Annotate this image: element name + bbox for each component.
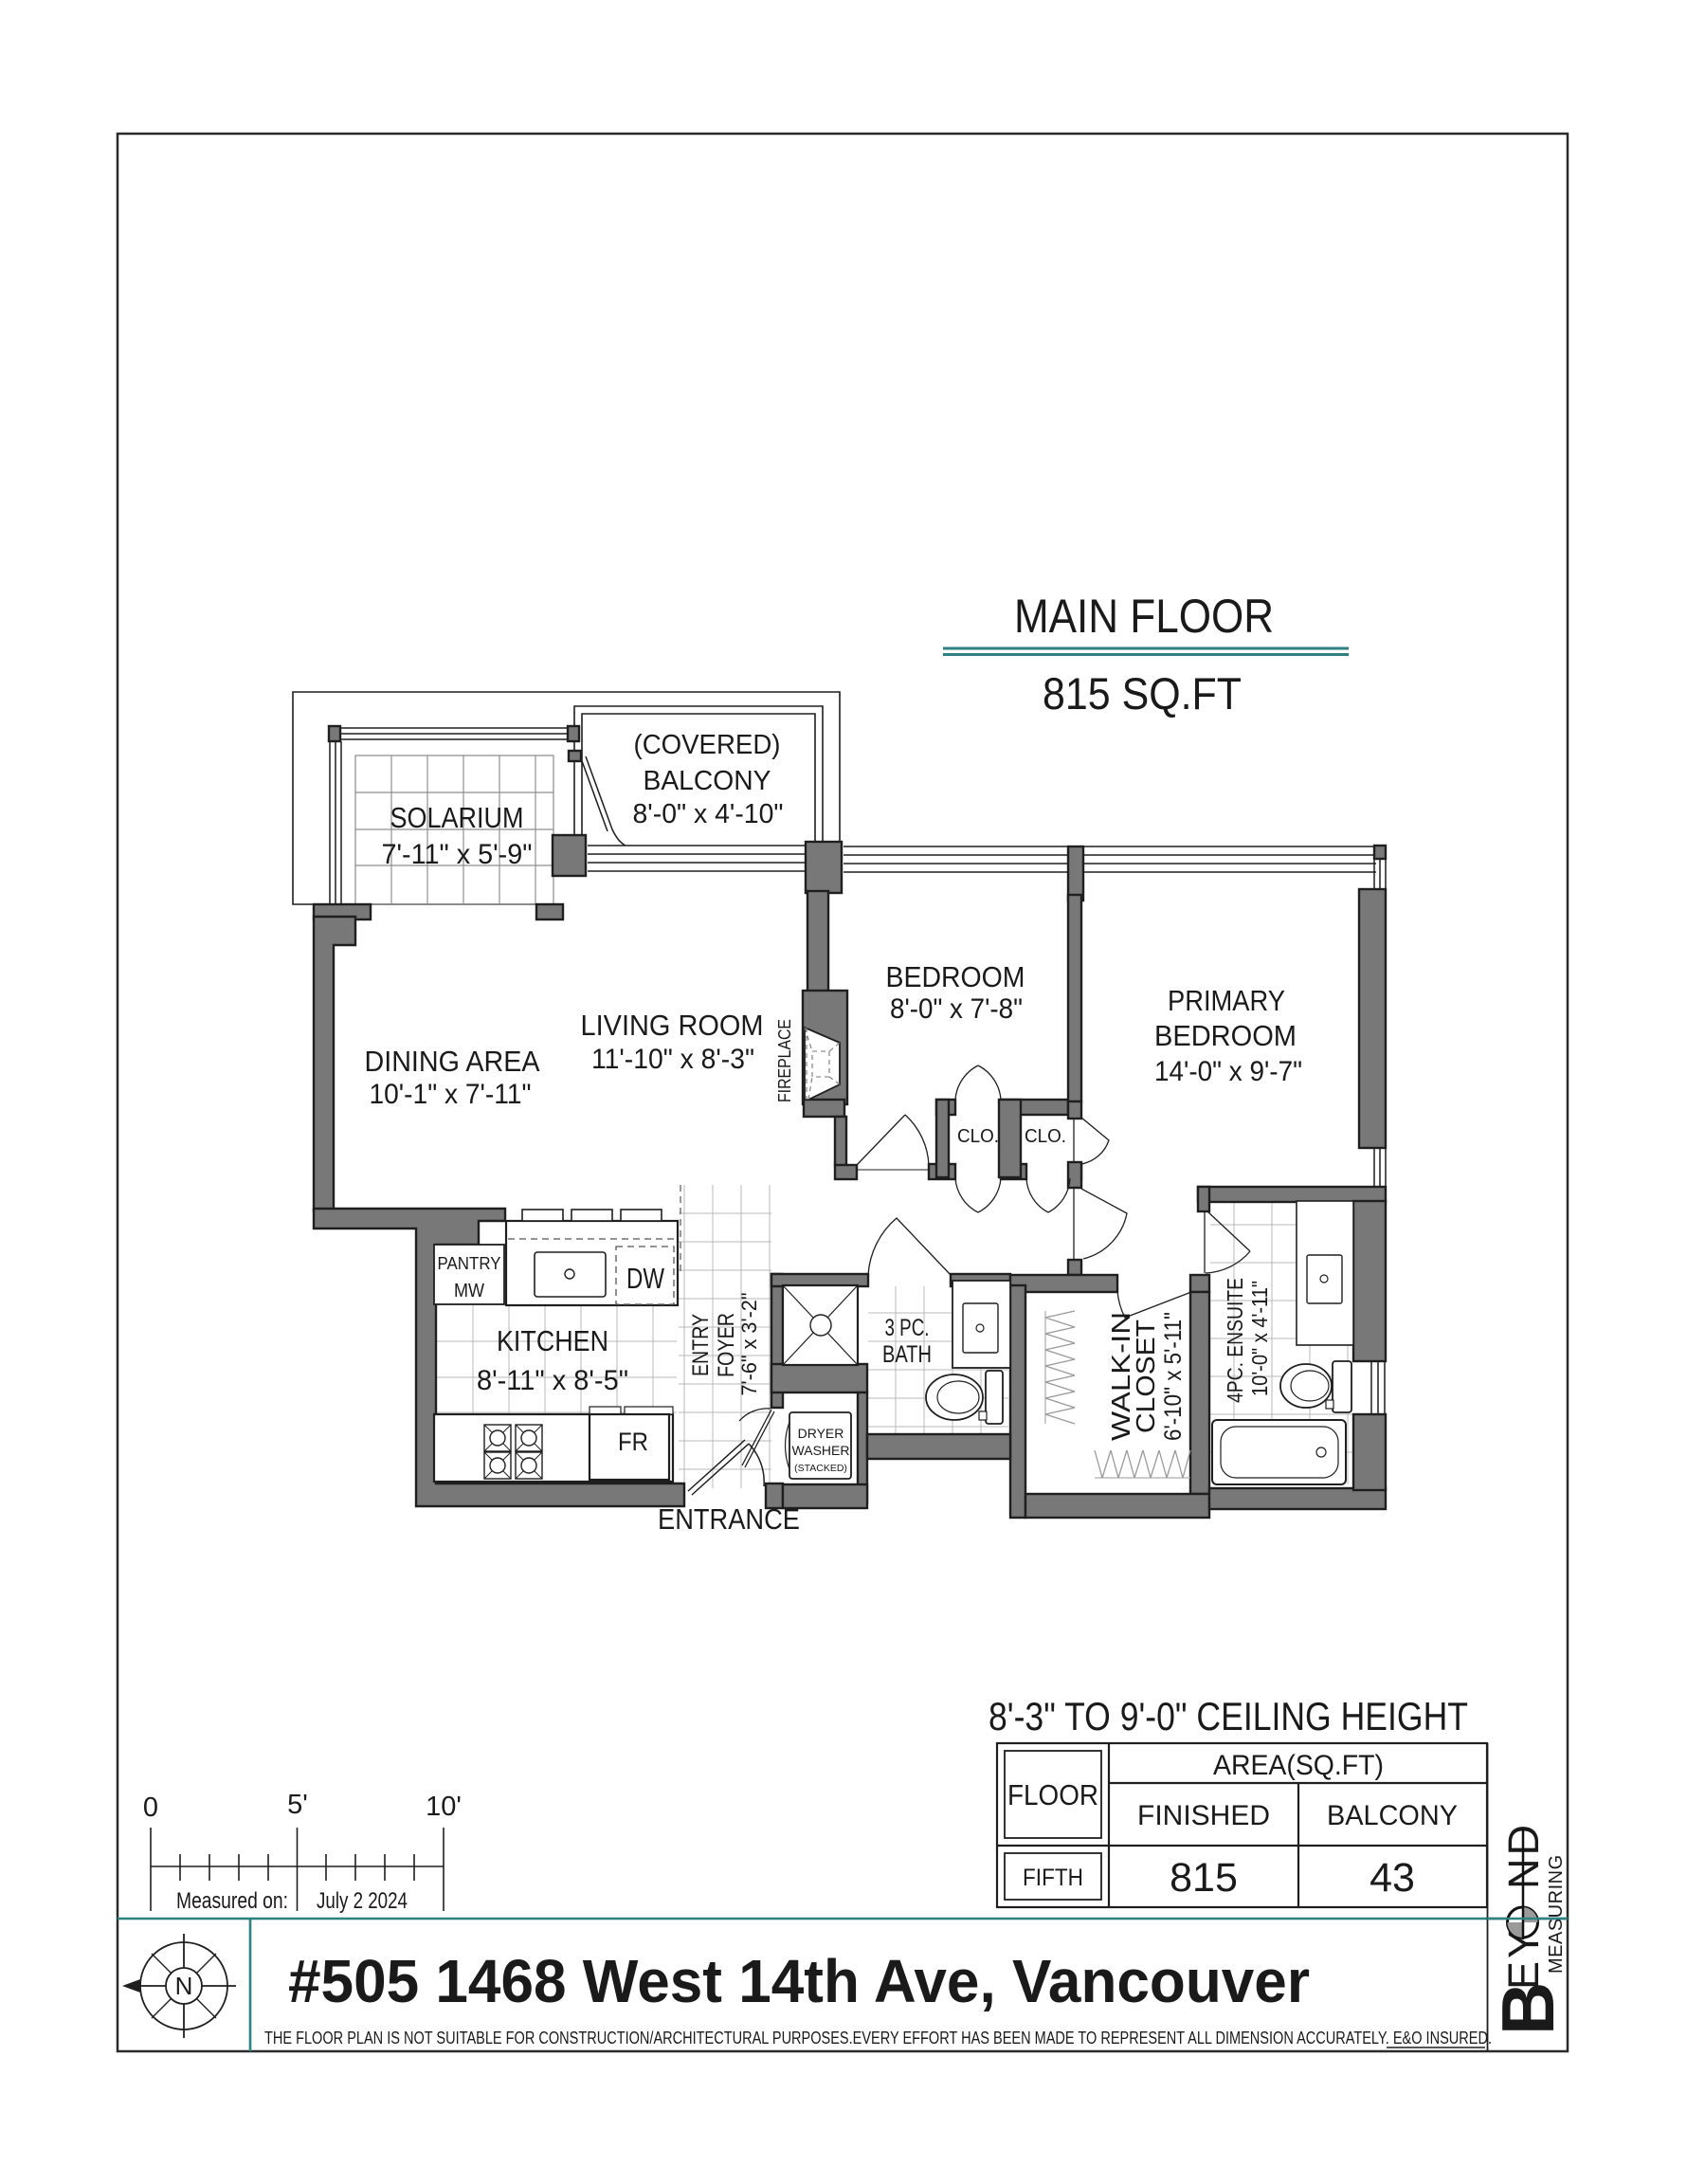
svg-text:(COVERED): (COVERED) (634, 730, 781, 760)
svg-text:WASHER: WASHER (792, 1443, 850, 1458)
svg-text:10'-1" x 7'-11": 10'-1" x 7'-11" (370, 1079, 532, 1110)
svg-text:FIFTH: FIFTH (1023, 1865, 1083, 1891)
svg-text:FR: FR (618, 1428, 648, 1456)
svg-text:ENTRANCE: ENTRANCE (658, 1502, 800, 1536)
svg-text:BALCONY: BALCONY (1327, 1800, 1458, 1831)
svg-text:N: N (175, 1972, 193, 2000)
svg-text:BEDROOM: BEDROOM (1154, 1019, 1297, 1052)
svg-text:43: 43 (1370, 1855, 1415, 1901)
svg-text:6'-10" x 5'-11": 6'-10" x 5'-11" (1160, 1312, 1187, 1441)
svg-text:0: 0 (143, 1793, 158, 1823)
svg-text:815: 815 (1170, 1855, 1238, 1901)
svg-text:KITCHEN: KITCHEN (497, 1324, 608, 1357)
svg-text:14'-0" x 9'-7": 14'-0" x 9'-7" (1154, 1056, 1302, 1087)
svg-text:DRYER: DRYER (798, 1426, 844, 1441)
svg-text:3 PC.: 3 PC. (885, 1315, 930, 1341)
svg-text:MEASURING: MEASURING (1546, 1854, 1567, 1974)
svg-text:THE FLOOR PLAN IS NOT SUITAB: THE FLOOR PLAN IS NOT SUITABLE FOR CONST… (264, 2029, 1492, 2047)
svg-text:DINING AREA: DINING AREA (365, 1045, 540, 1078)
svg-text:PRIMARY: PRIMARY (1168, 984, 1285, 1017)
svg-text:BALCONY: BALCONY (644, 766, 771, 796)
svg-text:MW: MW (454, 1281, 484, 1301)
svg-text:4PC. ENSUITE: 4PC. ENSUITE (1223, 1278, 1247, 1403)
svg-text:AREA(SQ.FT): AREA(SQ.FT) (1213, 1750, 1384, 1781)
svg-text:SOLARIUM: SOLARIUM (390, 801, 524, 834)
svg-text:8'-0" x 7'-8": 8'-0" x 7'-8" (890, 993, 1023, 1025)
svg-text:FOYER: FOYER (714, 1313, 739, 1377)
svg-text:Measured on:: Measured on: (176, 1888, 288, 1914)
svg-text:#505 1468 West 14th Ave, Vanco: #505 1468 West 14th Ave, Vancouver (288, 1947, 1310, 2015)
svg-text:BATH: BATH (882, 1341, 932, 1368)
svg-text:ENTRY: ENTRY (688, 1314, 714, 1376)
svg-text:BEDROOM: BEDROOM (886, 960, 1025, 993)
svg-text:FIREPLACE: FIREPLACE (775, 1019, 794, 1102)
svg-text:CLOSET: CLOSET (1131, 1319, 1160, 1433)
svg-text:FLOOR: FLOOR (1007, 1778, 1098, 1811)
svg-text:11'-10" x 8'-3": 11'-10" x 8'-3" (591, 1044, 754, 1075)
svg-text:MAIN FLOOR: MAIN FLOOR (1014, 590, 1274, 643)
svg-text:DW: DW (626, 1262, 665, 1295)
svg-text:10': 10' (426, 1792, 462, 1822)
svg-text:7'-11" x 5'-9": 7'-11" x 5'-9" (382, 839, 533, 870)
svg-text:8'-11" x 8'-5": 8'-11" x 8'-5" (477, 1365, 628, 1396)
svg-text:8'-0" x 4'-10": 8'-0" x 4'-10" (633, 799, 784, 829)
svg-text:CLO.: CLO. (957, 1126, 999, 1147)
svg-text:LIVING ROOM: LIVING ROOM (581, 1009, 764, 1042)
svg-text:815 SQ.FT: 815 SQ.FT (1043, 668, 1242, 719)
svg-text:(STACKED): (STACKED) (794, 1463, 847, 1474)
svg-text:5': 5' (287, 1790, 308, 1820)
svg-text:CLO.: CLO. (1025, 1126, 1066, 1147)
svg-text:PANTRY: PANTRY (438, 1254, 501, 1273)
svg-text:10'-0" x 4'-11": 10'-0" x 4'-11" (1247, 1281, 1272, 1396)
svg-text:8'-3" TO 9'-0" CEILING HEIGHT: 8'-3" TO 9'-0" CEILING HEIGHT (989, 1694, 1468, 1738)
svg-text:July 2 2024: July 2 2024 (317, 1888, 408, 1914)
svg-text:7'-6" x 3'-2": 7'-6" x 3'-2" (737, 1293, 761, 1396)
svg-text:FINISHED: FINISHED (1137, 1800, 1270, 1831)
